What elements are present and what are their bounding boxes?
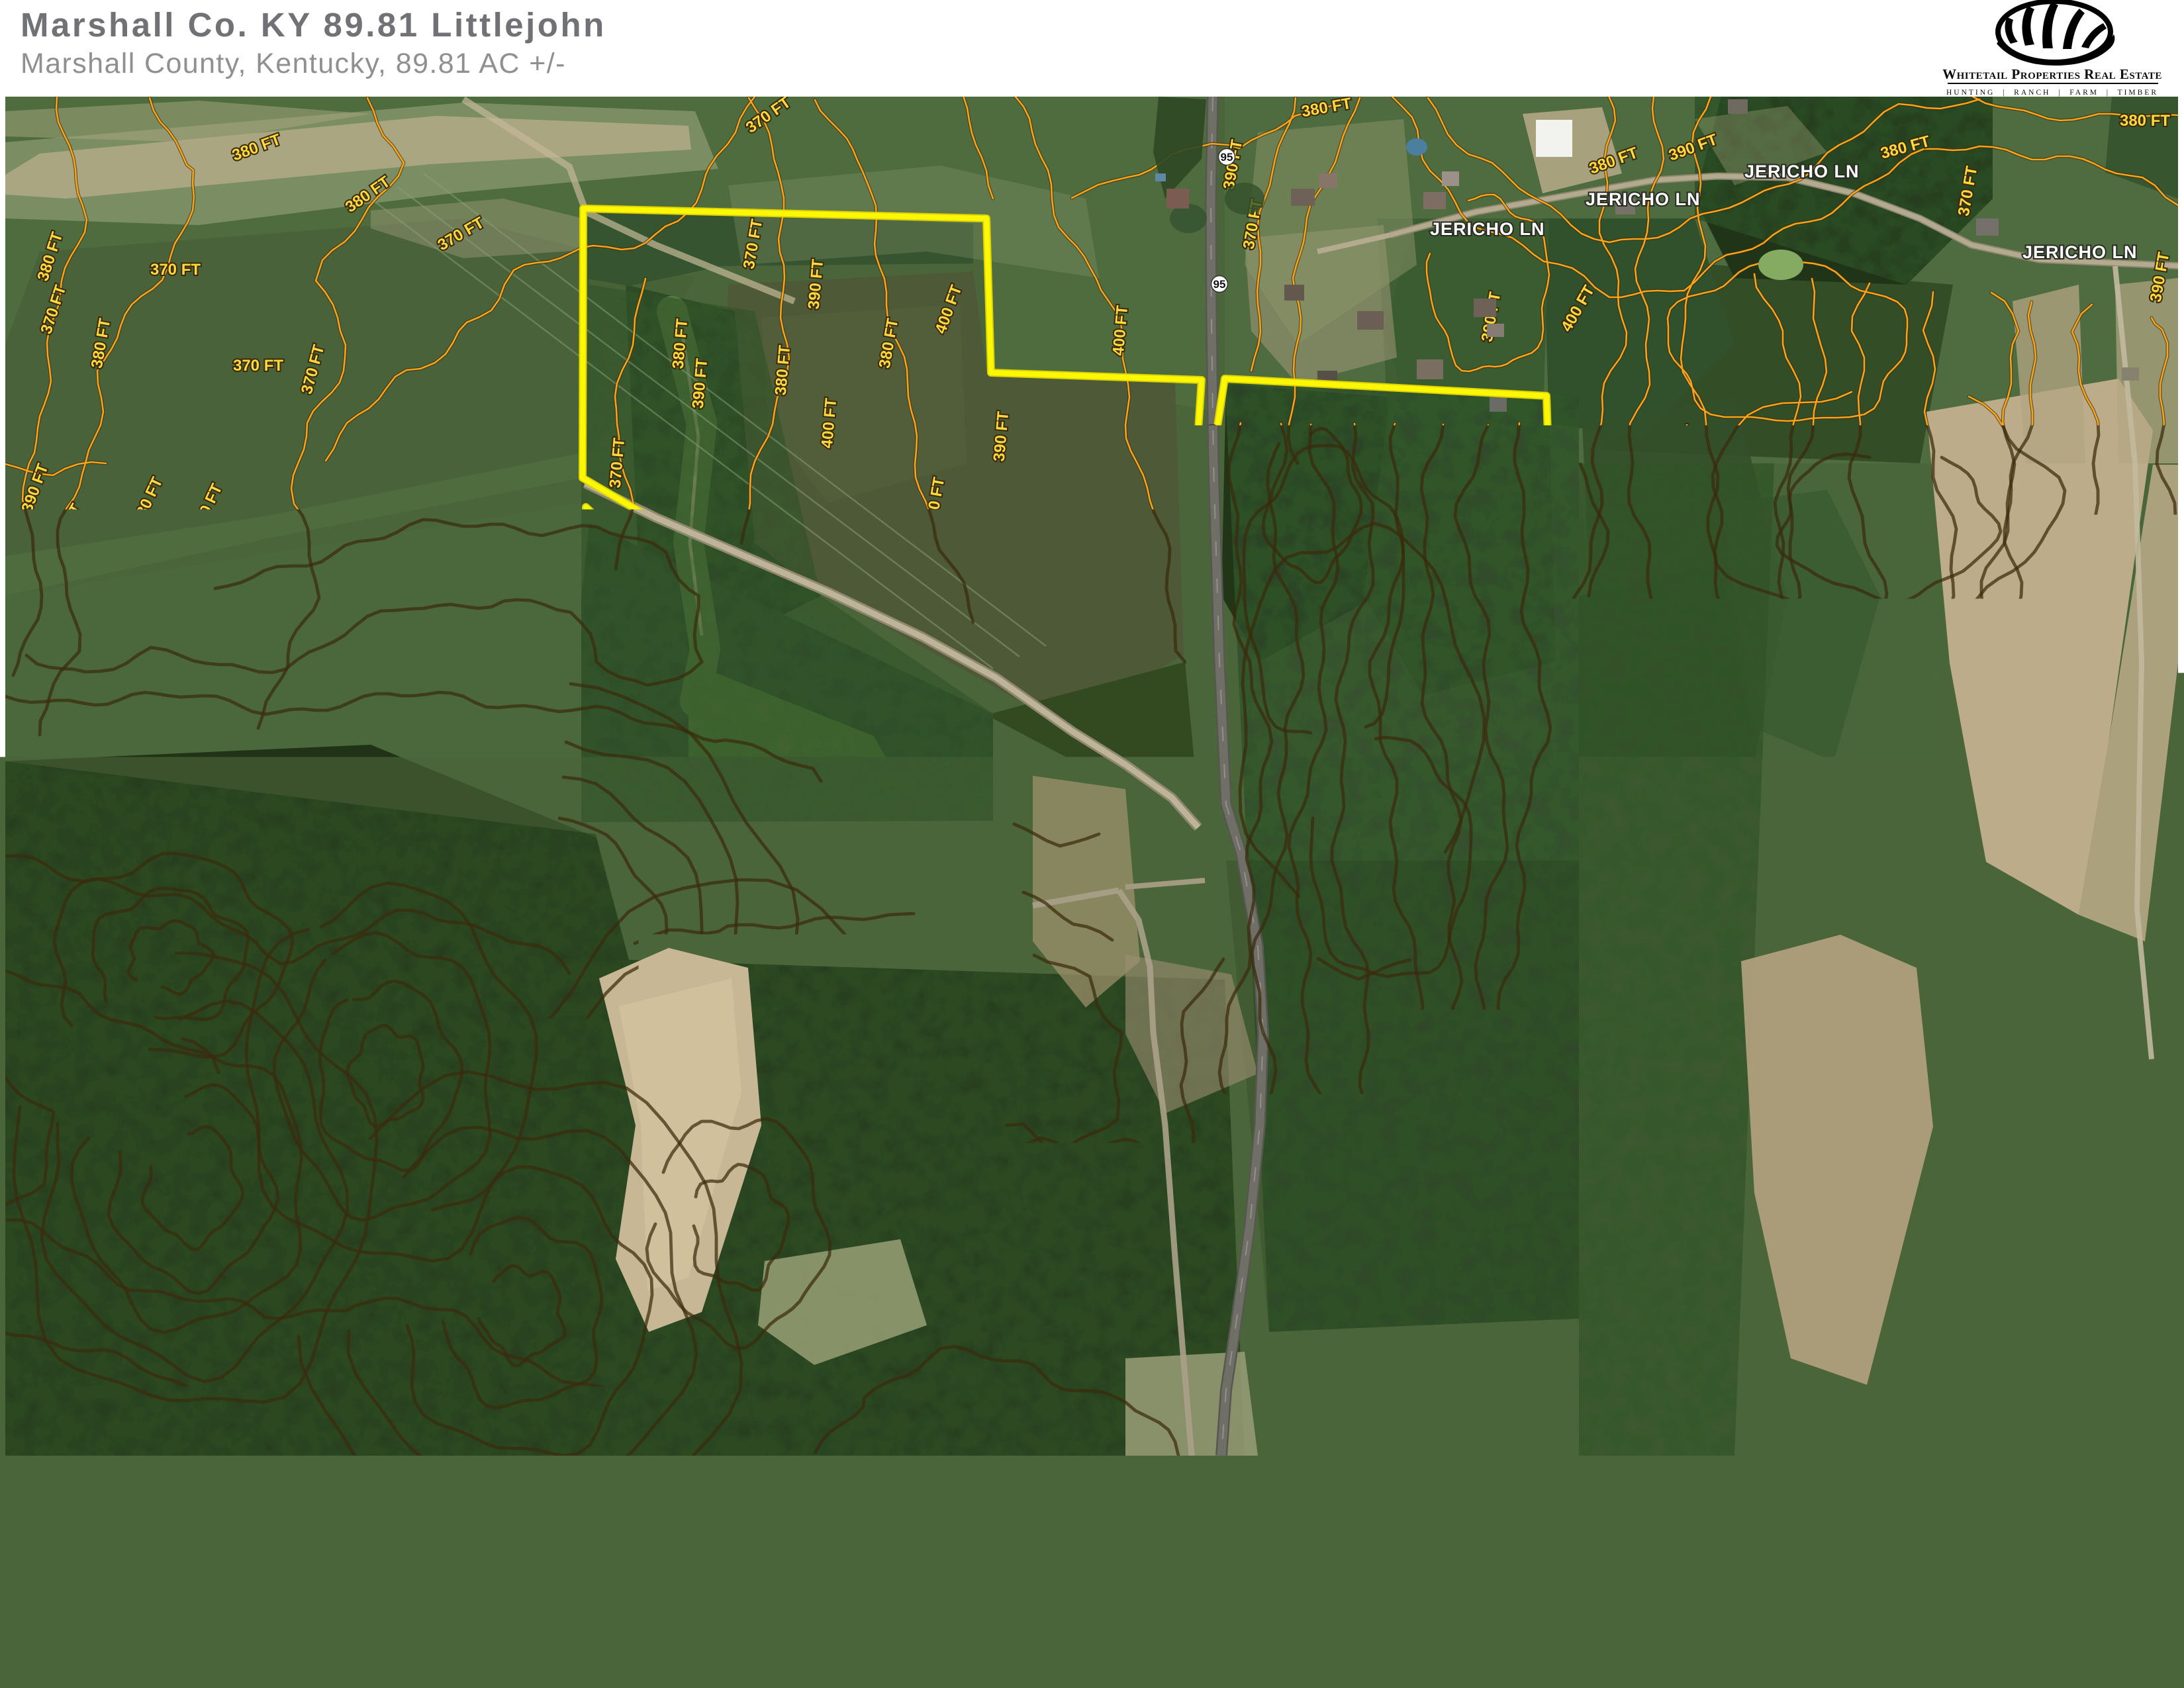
- svg-text:HUNTING | RANCH | FARM |: HUNTING | RANCH | FARM | TIMBER: [1946, 89, 2158, 97]
- svg-text:JERICHO LN: JERICHO LN: [1744, 162, 1860, 181]
- svg-text:95: 95: [1199, 534, 1211, 546]
- svg-text:370 FT: 370 FT: [356, 675, 406, 692]
- svg-text:95: 95: [1229, 933, 1241, 946]
- svg-text:390 FT: 390 FT: [594, 1105, 644, 1123]
- svg-text:370 FT: 370 FT: [150, 261, 201, 279]
- svg-text:JERICHO LN: JERICHO LN: [2022, 242, 2138, 262]
- svg-text:500: 500: [1469, 1386, 1527, 1425]
- svg-text:1500: 1500: [1868, 1386, 1945, 1425]
- svg-text:95: 95: [1221, 151, 1233, 164]
- svg-text:95: 95: [1251, 1315, 1264, 1327]
- svg-text:380 FT: 380 FT: [2120, 112, 2170, 130]
- svg-text:450 FT: 450 FT: [1292, 946, 1343, 964]
- svg-text:Whitetail Properties Real Esta: Whitetail Properties Real Estate: [1942, 66, 2162, 82]
- svg-text:95: 95: [1208, 810, 1221, 822]
- svg-text:M: M: [1725, 1620, 1760, 1668]
- svg-text:0: 0: [1290, 1386, 1309, 1425]
- svg-text:390 FT: 390 FT: [15, 635, 65, 653]
- svg-text:370 FT: 370 FT: [233, 357, 283, 375]
- svg-text:95: 95: [1206, 427, 1219, 440]
- svg-text:370 FT: 370 FT: [660, 678, 710, 696]
- svg-text:95: 95: [1258, 1190, 1271, 1203]
- svg-text:95: 95: [1196, 663, 1209, 676]
- svg-text:2000ft: 2000ft: [2063, 1386, 2159, 1425]
- svg-text:JERICHO LN: JERICHO LN: [1586, 189, 1701, 209]
- svg-text:95: 95: [1213, 278, 1226, 291]
- svg-text:1000: 1000: [1660, 1386, 1737, 1425]
- svg-text:95: 95: [1252, 1062, 1264, 1075]
- svg-text:JERICHO LN: JERICHO LN: [1430, 219, 1545, 239]
- svg-text:380 FT: 380 FT: [15, 734, 65, 752]
